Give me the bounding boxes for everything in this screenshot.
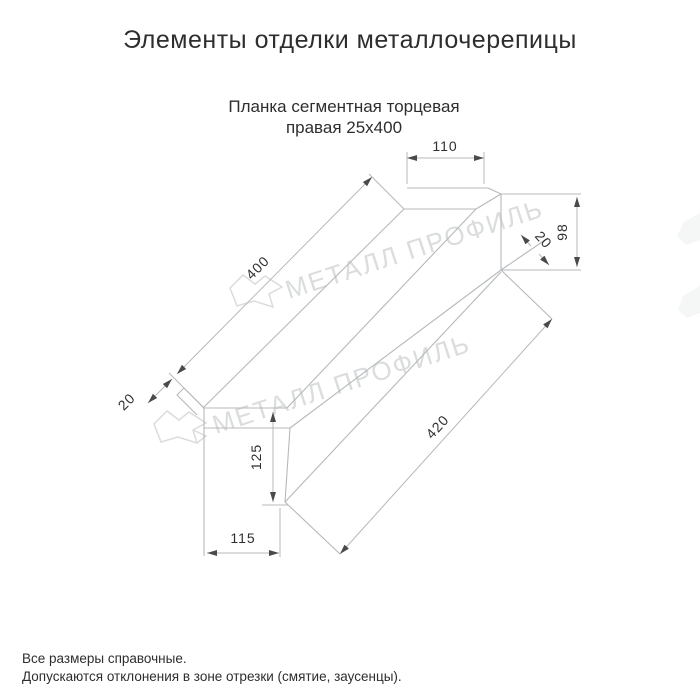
footer-notes: Все размеры справочные. Допускаются откл… <box>22 650 402 686</box>
footer-note-2: Допускаются отклонения в зоне отрезки (с… <box>22 668 402 686</box>
dim-leader-20-end-a <box>521 235 531 246</box>
dimension-labels: 110 98 20 400 420 20 125 115 <box>115 138 570 546</box>
dim-label-end-height: 98 <box>554 223 570 241</box>
dim-leader-20-end-b <box>539 254 549 265</box>
dim-line-20-left <box>148 379 172 403</box>
dim-label-end-hem: 20 <box>532 228 556 252</box>
watermark-edge-fragments <box>677 213 700 318</box>
footer-note-1: Все размеры справочные. <box>22 650 402 668</box>
dim-label-face-height: 125 <box>248 444 264 470</box>
profile-outline <box>177 188 552 556</box>
drawing-page: Элементы отделки металлочерепицы Планка … <box>0 0 700 700</box>
watermark-upper: МЕТАЛЛ ПРОФИЛЬ <box>230 193 547 307</box>
dim-label-bottom-length: 420 <box>423 412 453 442</box>
technical-drawing: МЕТАЛЛ ПРОФИЛЬ МЕТАЛЛ ПРОФИЛЬ <box>0 0 700 700</box>
dim-label-flange-width: 110 <box>432 138 457 154</box>
dim-label-bottom-width: 115 <box>230 530 255 546</box>
metall-profil-logo-icon <box>154 411 206 443</box>
watermark-text-upper: МЕТАЛЛ ПРОФИЛЬ <box>282 193 548 305</box>
dim-label-side-hem: 20 <box>115 390 139 414</box>
